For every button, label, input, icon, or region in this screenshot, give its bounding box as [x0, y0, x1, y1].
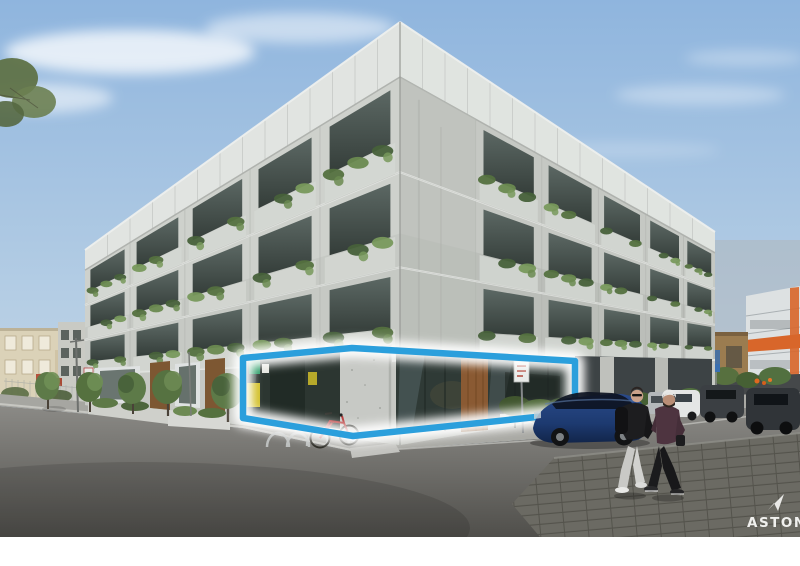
photo-page: ASTON [0, 0, 800, 566]
building-photo: ASTON [0, 0, 800, 537]
photo-scene: ASTON [0, 0, 800, 537]
aston-wordmark: ASTON [747, 515, 800, 531]
white-margin [0, 537, 800, 566]
window-poster [308, 372, 317, 385]
backpack [615, 407, 628, 434]
carried-bag [676, 435, 685, 446]
